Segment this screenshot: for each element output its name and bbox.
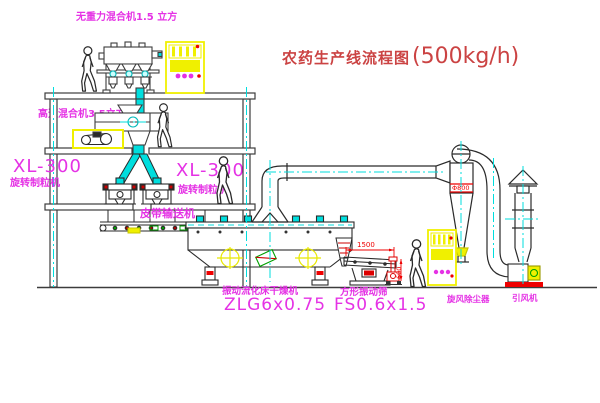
flow-diagram-canvas: 高速混合机3.5立方 XL-300 旋转制粒机	[0, 0, 600, 403]
induced-draft-fan-drawing	[505, 264, 543, 287]
person-figure-third-floor	[217, 157, 233, 204]
control-cabinet-top-drawing	[166, 42, 204, 93]
granulator-left-drawing	[103, 178, 137, 204]
person-figure-ground	[410, 240, 426, 287]
exhaust-duct-drawing	[252, 161, 450, 222]
diagram-drawing	[0, 0, 600, 403]
person-figure-second-floor	[158, 104, 172, 147]
control-cabinet-right-drawing	[428, 230, 456, 285]
weightless-mixer-drawing	[97, 42, 162, 93]
granulator-right-drawing	[140, 178, 174, 204]
person-figure-top-floor	[82, 47, 97, 91]
